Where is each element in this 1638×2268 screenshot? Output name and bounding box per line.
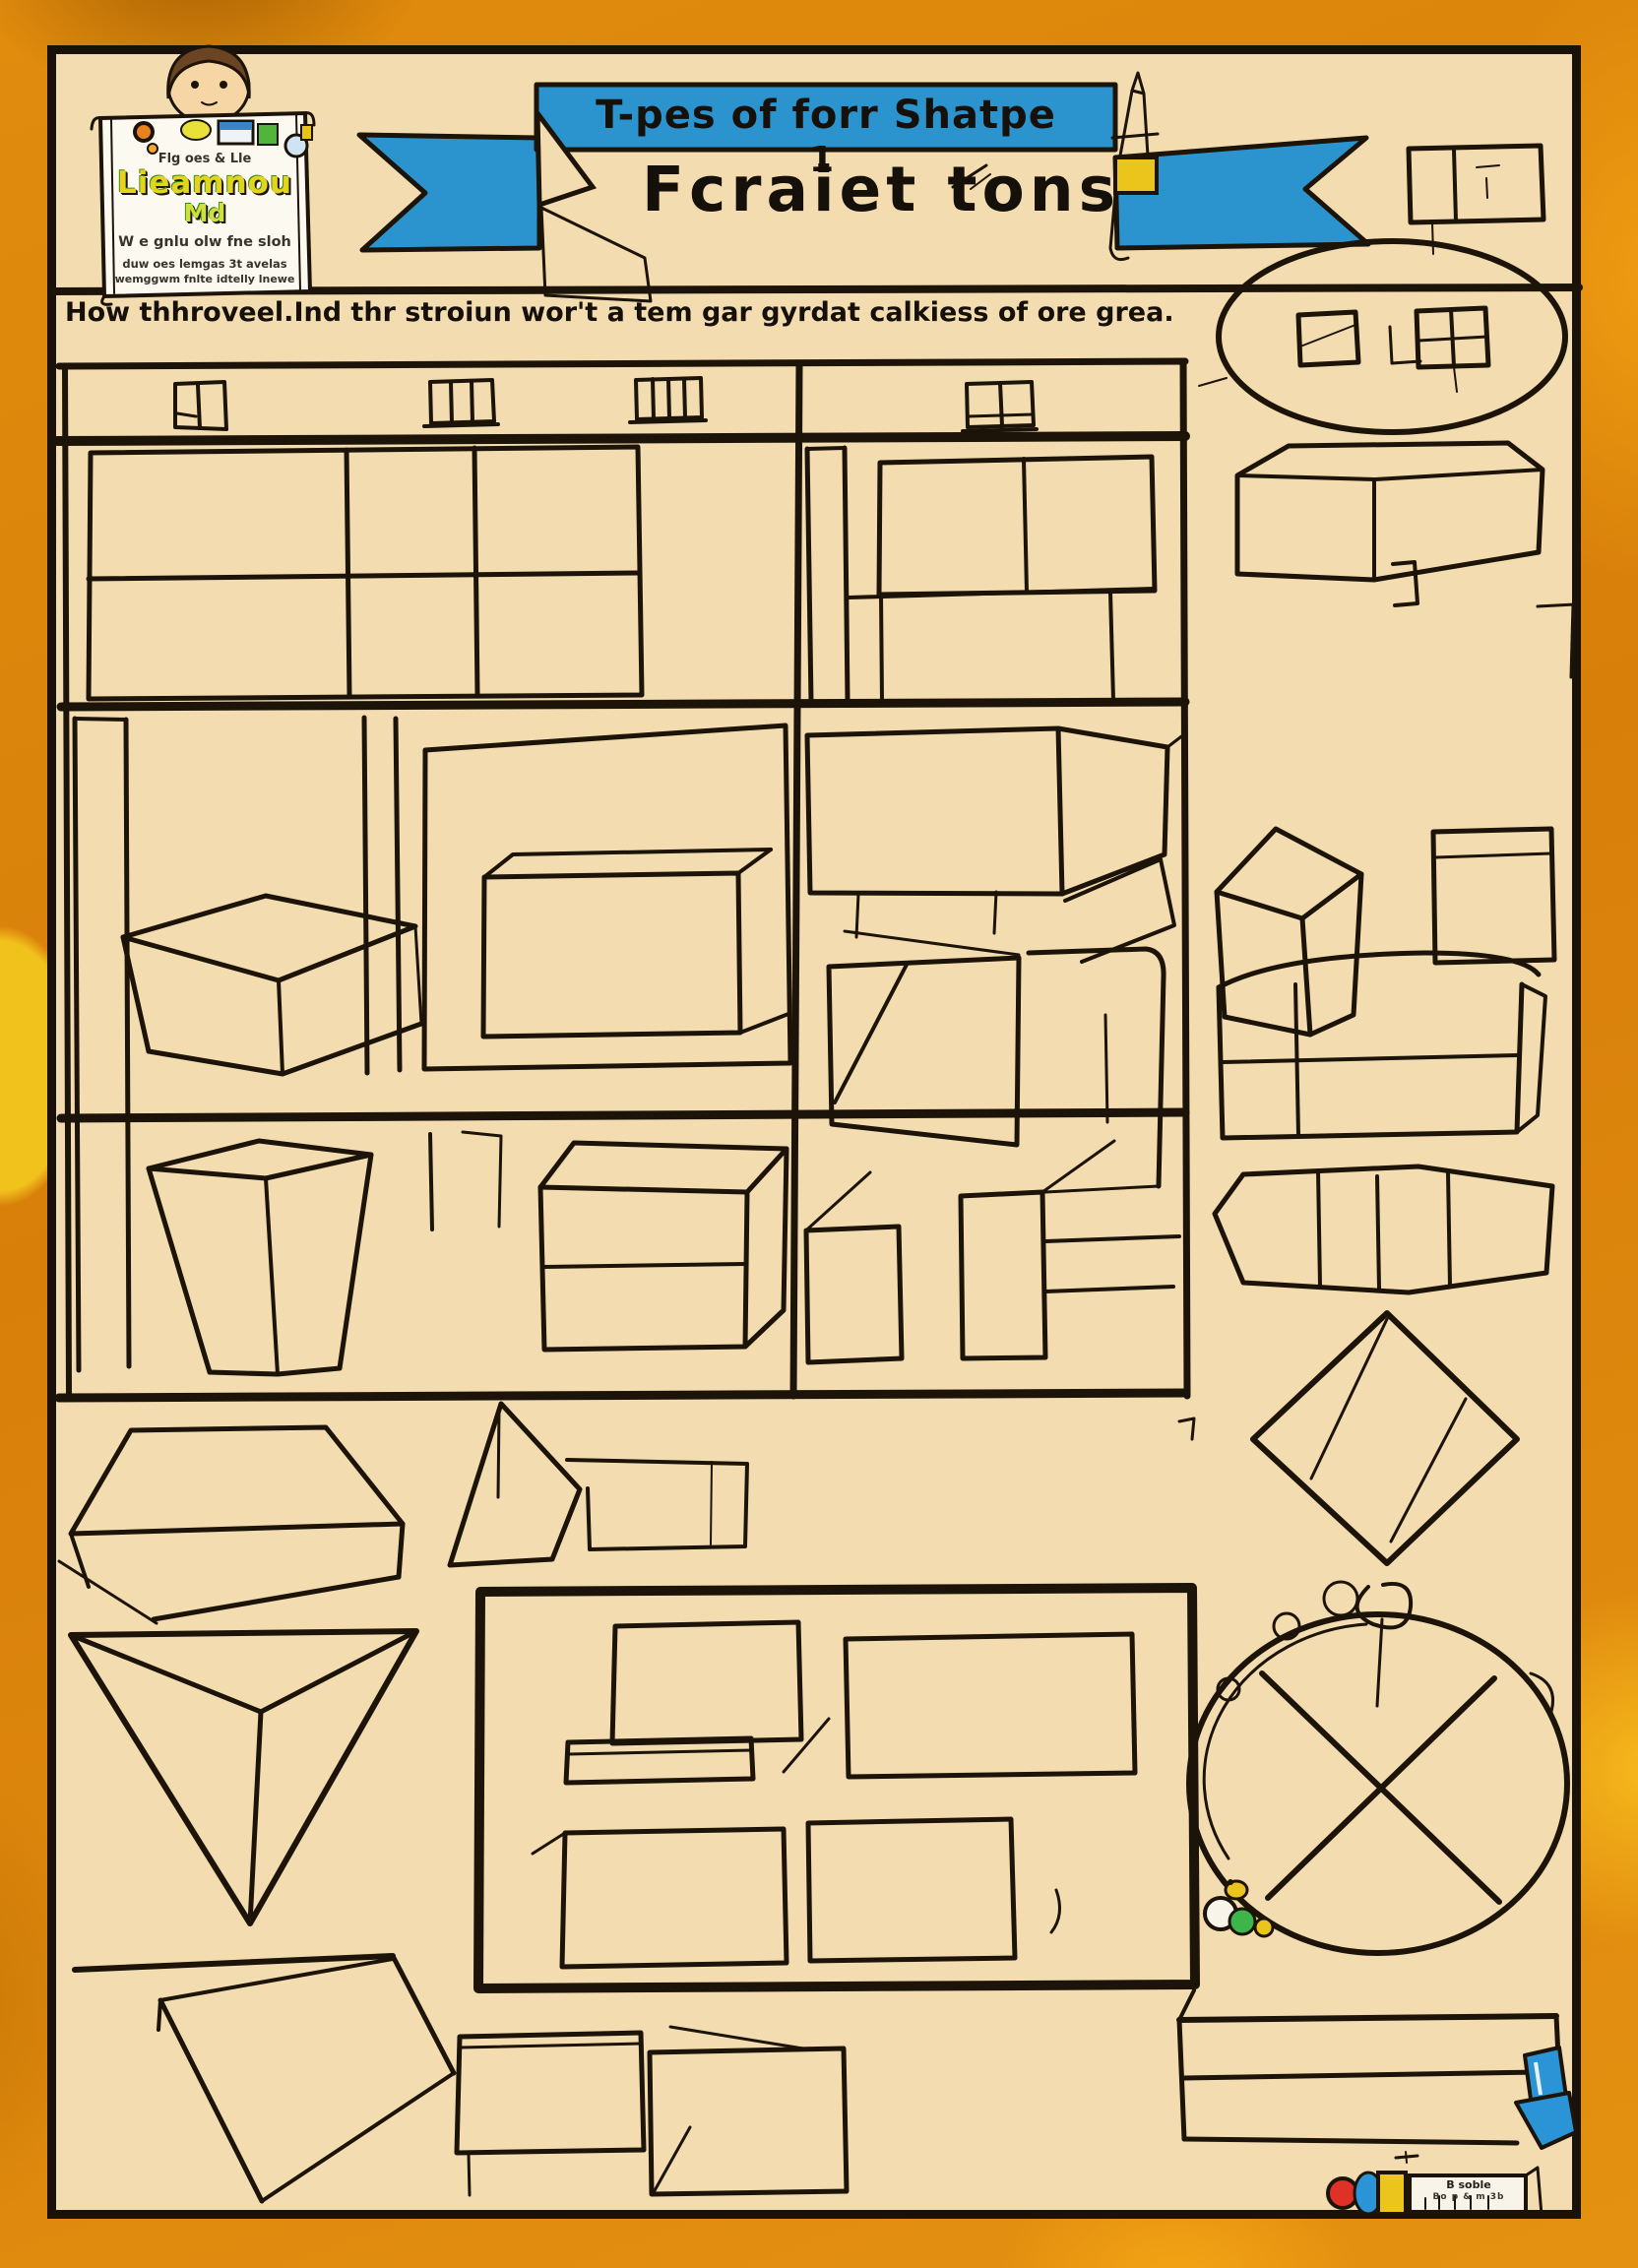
marker-label-line-1: B soble (1414, 2178, 1524, 2191)
sketch-layer (0, 0, 1638, 2268)
thin-panel-and-divided-box (807, 448, 1155, 703)
logo-line-1: W e gnlu olw fne sloh (104, 234, 305, 250)
triangular-pyramid-with-arm (450, 1404, 747, 1565)
hexagonal-prism (1215, 1166, 1552, 1292)
inverted-triangular-prism (71, 1631, 416, 1923)
stepped-panel (961, 1141, 1179, 1358)
diamond-kite (1253, 1313, 1517, 1563)
beads (1205, 1879, 1273, 1936)
three-pane-window-icon (424, 380, 498, 426)
dresser-3d-box (1219, 953, 1545, 1138)
logo-word-main: Lieamnou (104, 165, 305, 201)
blue-pencil-bottom (1516, 2093, 1576, 2148)
wreath-circle-with-cross (1189, 1582, 1567, 1953)
corner-table (75, 1956, 454, 2201)
open-box-lid (123, 896, 421, 1074)
logo-line-2: duw oes lemgas 3t avelas (104, 257, 305, 271)
cube-dresser (540, 1143, 787, 1350)
oval-with-two-squares (1199, 241, 1565, 432)
logo-word-sub: Md (104, 199, 305, 227)
long-shelf-with-blue-pencil (1179, 1990, 1576, 2148)
square-left (457, 2033, 644, 2195)
house-prism (59, 1427, 403, 1623)
thin-panel-middle (364, 718, 400, 1073)
square-right (650, 2027, 847, 2194)
top-right-rectangle (1409, 146, 1543, 254)
long-3d-table-box (807, 728, 1184, 962)
tall-side-panel (75, 719, 129, 1370)
ribbon-left-tail (359, 135, 539, 250)
marker-label-line-2: Bo p & m 3b (1414, 2192, 1524, 2202)
lemon-icon (181, 120, 211, 140)
banner-title: T-pes of forr Shatpe (539, 93, 1112, 138)
panel-with-inset-3d-box (424, 725, 790, 1069)
partitioned-grid-box (89, 447, 642, 699)
pencil-box-stripe (220, 122, 252, 130)
door-window-icon (175, 382, 226, 429)
logo-tagline: Flg oes & Lle (104, 152, 305, 166)
wide-prism (1237, 443, 1543, 605)
bucket-box (149, 1141, 371, 1374)
cube (1217, 829, 1361, 1035)
marker-yellow-band (1378, 2173, 1406, 2214)
four-pane-window-icon (630, 378, 706, 422)
gold-tag-icon (301, 125, 312, 140)
instruction-text: How thhroveel.Ind thr stroiun wor't a te… (65, 297, 1010, 328)
small-panel (806, 1172, 902, 1362)
page-title: Fcraiet tons (642, 154, 1120, 225)
orange-dot-icon (135, 123, 153, 141)
worksheet-canvas: T-pes of forr Shatpe Fcraiet tons 1 How … (0, 0, 1638, 2268)
two-pane-window-icon (963, 382, 1037, 431)
page-title-superscript: 1 (809, 140, 834, 180)
logo-line-3: wemggwm fnlte idtelly lnewe (104, 273, 305, 285)
pencil-yellow-square (1115, 157, 1157, 193)
framed-panel-with-four-rectangles (478, 1588, 1195, 1988)
corner-marks (430, 1132, 501, 1229)
plain-square (1433, 829, 1554, 963)
green-box-icon (258, 124, 278, 145)
shape-table-grid (57, 361, 1187, 1398)
